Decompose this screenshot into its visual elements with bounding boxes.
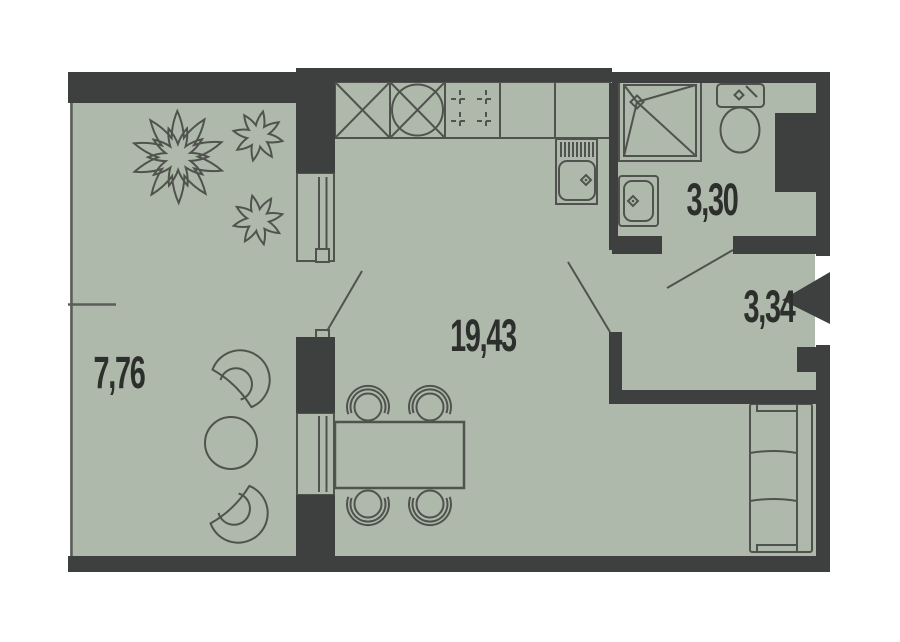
room-label-living-kitchen: 19,43 (450, 312, 516, 362)
room-label-hallway: 3,34 (744, 283, 796, 333)
room-label-balcony: 7,76 (94, 349, 145, 399)
floor-plan-canvas: 19,43 7,76 3,30 3,34 (0, 0, 900, 642)
floor-plan: 19,43 7,76 3,30 3,34 (0, 0, 900, 642)
room-label-bathroom: 3,30 (687, 176, 738, 226)
window (297, 173, 334, 262)
